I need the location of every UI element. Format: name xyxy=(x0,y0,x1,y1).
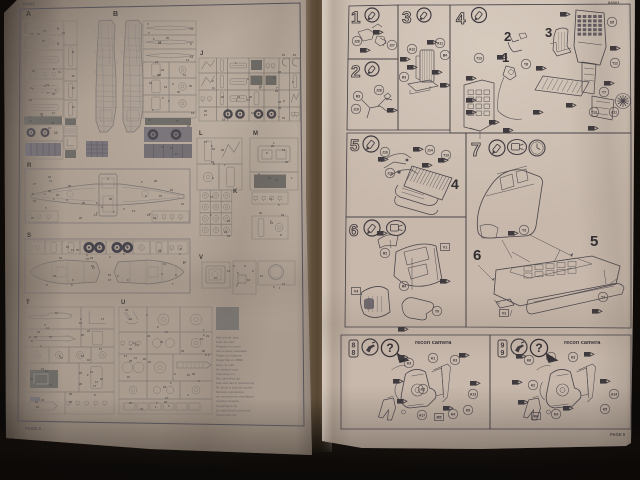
svg-text:84001: 84001 xyxy=(608,1,620,6)
svg-text:T7: T7 xyxy=(602,90,606,94)
svg-text:4: 4 xyxy=(451,176,459,192)
svg-text:A17: A17 xyxy=(419,413,425,417)
svg-text:5: 5 xyxy=(590,233,598,250)
svg-text:6: 6 xyxy=(473,247,481,264)
svg-text:T2: T2 xyxy=(601,295,605,299)
svg-text:T13: T13 xyxy=(476,56,482,60)
svg-text:J19: J19 xyxy=(353,107,359,111)
svg-text:M6: M6 xyxy=(534,415,539,419)
svg-text:recon camera: recon camera xyxy=(415,340,452,346)
svg-text:A13: A13 xyxy=(470,392,476,396)
svg-text:9: 9 xyxy=(501,350,505,357)
svg-text:T13: T13 xyxy=(591,110,597,114)
svg-text:B4: B4 xyxy=(443,53,447,57)
svg-text:K4: K4 xyxy=(451,412,455,416)
svg-text:A11: A11 xyxy=(611,110,617,114)
svg-text:J18: J18 xyxy=(387,171,393,175)
svg-text:J27: J27 xyxy=(389,43,395,47)
svg-text:6: 6 xyxy=(349,221,358,240)
svg-text:K2: K2 xyxy=(421,387,425,391)
svg-text:3: 3 xyxy=(545,25,552,40)
svg-text:4: 4 xyxy=(456,9,466,28)
svg-text:R3: R3 xyxy=(402,75,406,79)
svg-text:7: 7 xyxy=(471,140,481,160)
svg-text:T12: T12 xyxy=(612,61,618,65)
svg-text:V1: V1 xyxy=(443,246,447,250)
svg-text:T3: T3 xyxy=(522,228,526,232)
svg-text:K4: K4 xyxy=(554,412,558,416)
svg-text:T13: T13 xyxy=(443,153,449,157)
svg-text:?: ? xyxy=(535,341,542,355)
svg-text:8: 8 xyxy=(352,350,356,357)
svg-text:8: 8 xyxy=(352,343,356,350)
svg-text:V4: V4 xyxy=(354,290,358,294)
svg-text:R3: R3 xyxy=(356,94,360,98)
svg-text:T9: T9 xyxy=(435,309,439,313)
svg-text:K3: K3 xyxy=(571,355,575,359)
svg-text:K1: K1 xyxy=(431,356,435,360)
svg-text:K6: K6 xyxy=(527,358,531,362)
svg-text:recon camera: recon camera xyxy=(564,340,601,346)
svg-text:M5: M5 xyxy=(437,416,442,420)
svg-text:T8: T8 xyxy=(524,62,528,66)
svg-text:A11: A11 xyxy=(437,41,443,45)
svg-text:2: 2 xyxy=(351,62,360,81)
svg-text:5: 5 xyxy=(350,136,359,155)
svg-text:V2: V2 xyxy=(502,312,506,316)
svg-text:A12: A12 xyxy=(409,47,415,51)
svg-text:PAGE 5: PAGE 5 xyxy=(610,432,626,437)
svg-text:J28: J28 xyxy=(376,88,382,92)
svg-text:K3: K3 xyxy=(453,358,457,362)
svg-text:9: 9 xyxy=(501,343,505,350)
svg-text:J16: J16 xyxy=(382,150,388,154)
svg-text:K3: K3 xyxy=(407,361,411,365)
svg-text:J14: J14 xyxy=(427,148,433,152)
svg-text:3: 3 xyxy=(402,8,411,27)
svg-text:K2: K2 xyxy=(531,383,535,387)
svg-text:K5: K5 xyxy=(466,408,470,412)
svg-text:?: ? xyxy=(386,341,393,355)
svg-text:1: 1 xyxy=(351,8,360,27)
svg-text:U5: U5 xyxy=(610,20,614,24)
svg-text:K5: K5 xyxy=(603,407,607,411)
svg-text:R2: R2 xyxy=(383,251,387,255)
svg-text:A14: A14 xyxy=(611,392,617,396)
svg-text:R4: R4 xyxy=(402,284,406,288)
svg-text:K1: K1 xyxy=(549,355,553,359)
svg-text:J26: J26 xyxy=(354,39,360,43)
